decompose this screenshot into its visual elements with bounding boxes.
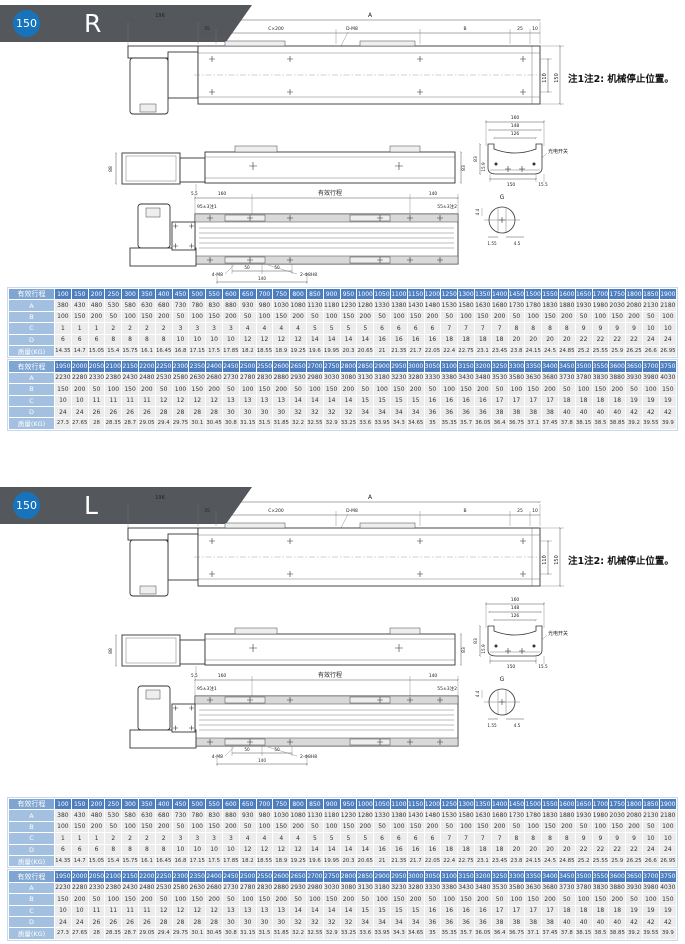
stroke-value-header: 1900 xyxy=(659,799,676,810)
cell-A: 2230 xyxy=(55,372,72,383)
cell-D: 26 xyxy=(122,916,139,927)
cell-mass: 22.75 xyxy=(458,345,475,356)
cell-A: 1280 xyxy=(357,300,374,311)
cell-D: 12 xyxy=(239,844,256,855)
cell-A: 1780 xyxy=(525,300,542,311)
carriage-1 xyxy=(235,146,277,152)
stroke-value-header: 1000 xyxy=(357,799,374,810)
cell-D: 16 xyxy=(407,334,424,345)
cell-C: 7 xyxy=(474,833,491,844)
label-holes-d-m8: D-M8 xyxy=(346,508,358,514)
cell-A: 3030 xyxy=(323,372,340,383)
cell-mass: 25.9 xyxy=(609,855,626,866)
row-label-A: A xyxy=(9,372,55,383)
cell-C: 13 xyxy=(222,905,239,916)
cell-B: 100 xyxy=(508,894,525,905)
dim-15-9: 15.9 xyxy=(481,644,486,654)
stroke-value-header: 900 xyxy=(323,799,340,810)
cell-C: 10 xyxy=(71,395,88,406)
stroke-header-label: 有效行程 xyxy=(9,871,55,882)
cell-B: 50 xyxy=(88,894,105,905)
cell-mass: 37.1 xyxy=(525,418,542,429)
cell-mass: 21 xyxy=(374,855,391,866)
cell-C: 10 xyxy=(642,323,659,334)
cell-C: 16 xyxy=(474,905,491,916)
cell-A: 530 xyxy=(105,300,122,311)
row-label-C: C xyxy=(9,395,55,406)
cell-mass: 17.85 xyxy=(222,855,239,866)
stroke-value-header: 2300 xyxy=(172,361,189,372)
stroke-value-header: 2300 xyxy=(172,871,189,882)
cell-C: 18 xyxy=(558,905,575,916)
cell-B: 100 xyxy=(642,384,659,395)
stroke-value-header: 1300 xyxy=(458,289,475,300)
cell-B: 200 xyxy=(542,384,559,395)
cell-C: 6 xyxy=(424,323,441,334)
cell-D: 20 xyxy=(508,844,525,855)
stroke-value-header: 3550 xyxy=(592,871,609,882)
cell-D: 8 xyxy=(122,334,139,345)
cell-A: 730 xyxy=(172,810,189,821)
top-view: 196 A 35 C×200 D-M8 B 25 10 110 150 xyxy=(128,494,564,596)
cell-D: 24 xyxy=(659,844,676,855)
dim-15-9: 15.9 xyxy=(481,162,486,172)
cell-mass: 32.55 xyxy=(306,928,323,939)
stroke-value-header: 2850 xyxy=(357,361,374,372)
cell-C: 17 xyxy=(525,905,542,916)
stroke-value-header: 3200 xyxy=(474,361,491,372)
dim-83-section: 83 xyxy=(473,638,479,644)
cell-D: 22 xyxy=(626,844,643,855)
cell-mass: 30.45 xyxy=(206,928,223,939)
cell-A: 2630 xyxy=(189,372,206,383)
cell-B: 200 xyxy=(357,821,374,832)
cell-mass: 26.6 xyxy=(642,855,659,866)
cell-B: 200 xyxy=(88,311,105,322)
cell-A: 1430 xyxy=(407,810,424,821)
cell-C: 2 xyxy=(105,323,122,334)
stroke-value-header: 3300 xyxy=(508,361,525,372)
cell-C: 19 xyxy=(659,905,676,916)
dim-10: 10 xyxy=(532,26,538,32)
cell-D: 14 xyxy=(306,334,323,345)
cell-mass: 39.55 xyxy=(642,418,659,429)
stroke-value-header: 2000 xyxy=(71,871,88,882)
stroke-value-header: 2250 xyxy=(155,871,172,882)
stroke-value-header: 2600 xyxy=(273,361,290,372)
cell-A: 3680 xyxy=(542,372,559,383)
cell-D: 26 xyxy=(88,916,105,927)
cell-D: 40 xyxy=(558,916,575,927)
cell-C: 9 xyxy=(592,323,609,334)
cell-mass: 16.8 xyxy=(172,345,189,356)
cell-B: 50 xyxy=(357,894,374,905)
stroke-value-header: 2900 xyxy=(374,361,391,372)
cell-B: 150 xyxy=(206,821,223,832)
dim-motor-length: 196 xyxy=(155,13,165,19)
cell-B: 100 xyxy=(374,384,391,395)
cell-C: 3 xyxy=(172,323,189,334)
cell-B: 100 xyxy=(172,384,189,395)
stroke-value-header: 3400 xyxy=(542,871,559,882)
cell-A: 1480 xyxy=(424,810,441,821)
cell-mass: 21 xyxy=(374,345,391,356)
cell-D: 20 xyxy=(508,334,525,345)
cell-mass: 24.15 xyxy=(525,345,542,356)
cell-mass: 31.85 xyxy=(273,928,290,939)
cell-D: 26 xyxy=(138,406,155,417)
cell-A: 2930 xyxy=(290,372,307,383)
cell-D: 38 xyxy=(525,916,542,927)
cell-A: 2030 xyxy=(609,300,626,311)
cell-mass: 39.9 xyxy=(659,928,676,939)
tolerance-right: 55±3注2 xyxy=(437,685,457,692)
cell-B: 200 xyxy=(340,894,357,905)
cell-A: 3130 xyxy=(357,882,374,893)
spec-tables-r: 有效行程100150200250300350400450500550600650… xyxy=(8,288,677,430)
cell-A: 3630 xyxy=(525,882,542,893)
stroke-value-header: 1250 xyxy=(441,289,458,300)
cell-mass: 27.3 xyxy=(55,418,72,429)
cell-C: 7 xyxy=(491,323,508,334)
cell-C: 7 xyxy=(458,323,475,334)
cell-D: 28 xyxy=(189,916,206,927)
cell-A: 2730 xyxy=(222,372,239,383)
cell-B: 200 xyxy=(474,894,491,905)
stroke-value-header: 1600 xyxy=(558,289,575,300)
cell-D: 20 xyxy=(525,844,542,855)
cell-C: 8 xyxy=(558,323,575,334)
cell-mass: 14.7 xyxy=(71,345,88,356)
cell-D: 30 xyxy=(222,406,239,417)
cell-C: 2 xyxy=(138,323,155,334)
cell-B: 100 xyxy=(575,894,592,905)
stroke-value-header: 3050 xyxy=(424,871,441,882)
cell-mass: 23.1 xyxy=(474,345,491,356)
cell-C: 14 xyxy=(323,905,340,916)
coupling-housing xyxy=(168,534,198,580)
cell-B: 50 xyxy=(441,311,458,322)
dim-140-bottom: 140 xyxy=(258,758,266,763)
cell-D: 40 xyxy=(609,406,626,417)
cell-A: 3830 xyxy=(592,372,609,383)
cell-D: 12 xyxy=(290,844,307,855)
dim-50-1: 50 xyxy=(244,265,250,270)
cell-A: 1230 xyxy=(340,810,357,821)
cell-D: 42 xyxy=(642,406,659,417)
cell-D: 24 xyxy=(55,406,72,417)
cell-B: 100 xyxy=(642,894,659,905)
cell-B: 150 xyxy=(256,384,273,395)
cell-A: 1630 xyxy=(474,810,491,821)
stroke-value-header: 600 xyxy=(222,799,239,810)
cell-mass: 37.8 xyxy=(558,418,575,429)
cell-D: 16 xyxy=(374,334,391,345)
cell-C: 15 xyxy=(374,395,391,406)
cell-mass: 32.55 xyxy=(306,418,323,429)
cell-C: 3 xyxy=(222,833,239,844)
cell-C: 12 xyxy=(206,905,223,916)
row-label-B: B xyxy=(9,311,55,322)
cell-C: 14 xyxy=(290,395,307,406)
cell-B: 50 xyxy=(306,311,323,322)
stroke-value-header: 750 xyxy=(273,289,290,300)
cell-B: 50 xyxy=(626,384,643,395)
cell-D: 28 xyxy=(155,406,172,417)
cell-C: 3 xyxy=(189,833,206,844)
cell-B: 150 xyxy=(55,894,72,905)
cell-D: 18 xyxy=(458,334,475,345)
cell-mass: 14.35 xyxy=(55,345,72,356)
cell-A: 680 xyxy=(155,300,172,311)
stroke-value-header: 2750 xyxy=(323,871,340,882)
cell-mass: 24.15 xyxy=(525,855,542,866)
stroke-value-header: 1950 xyxy=(55,361,72,372)
cell-B: 200 xyxy=(407,894,424,905)
cell-D: 40 xyxy=(558,406,575,417)
stroke-value-header: 3200 xyxy=(474,871,491,882)
cell-B: 50 xyxy=(491,894,508,905)
stroke-value-header: 1250 xyxy=(441,799,458,810)
row-label-D: D xyxy=(9,334,55,345)
cell-B: 150 xyxy=(407,821,424,832)
cell-C: 10 xyxy=(659,323,676,334)
g-detail-view: G 4.4 1.55 4.5 xyxy=(475,676,524,728)
dim-50-1: 50 xyxy=(244,747,250,752)
cell-B: 100 xyxy=(189,821,206,832)
cell-mass: 16.1 xyxy=(138,855,155,866)
cell-C: 14 xyxy=(340,905,357,916)
dim-B: B xyxy=(463,26,466,32)
cell-C: 14 xyxy=(306,395,323,406)
cell-B: 50 xyxy=(172,311,189,322)
cell-mass: 35.35 xyxy=(441,418,458,429)
cell-D: 22 xyxy=(575,334,592,345)
cell-A: 1980 xyxy=(592,300,609,311)
cell-B: 150 xyxy=(458,894,475,905)
stroke-value-header: 200 xyxy=(88,289,105,300)
cell-A: 3580 xyxy=(508,882,525,893)
dim-15-5: 15.5 xyxy=(538,182,548,187)
cell-D: 38 xyxy=(491,916,508,927)
tolerance-left: 95±3注1 xyxy=(197,203,217,210)
row-label-B: B xyxy=(9,384,55,395)
stroke-value-header: 1150 xyxy=(407,799,424,810)
cell-B: 200 xyxy=(558,821,575,832)
cell-C: 16 xyxy=(458,395,475,406)
cell-A: 2380 xyxy=(105,372,122,383)
stroke-value-header: 3500 xyxy=(575,871,592,882)
cell-D: 34 xyxy=(374,406,391,417)
stroke-value-header: 3250 xyxy=(491,361,508,372)
cell-B: 50 xyxy=(558,894,575,905)
cell-C: 16 xyxy=(458,905,475,916)
cell-B: 50 xyxy=(222,894,239,905)
cell-A: 830 xyxy=(206,300,223,311)
cell-B: 200 xyxy=(138,894,155,905)
cell-B: 50 xyxy=(575,821,592,832)
cell-B: 50 xyxy=(626,894,643,905)
cell-A: 3730 xyxy=(558,882,575,893)
cell-mass: 21.7 xyxy=(407,855,424,866)
cell-C: 4 xyxy=(290,323,307,334)
stroke-value-header: 3550 xyxy=(592,361,609,372)
row-label-B: B xyxy=(9,821,55,832)
cell-B: 50 xyxy=(239,821,256,832)
cell-A: 2430 xyxy=(122,372,139,383)
cell-mass: 31.5 xyxy=(256,418,273,429)
stroke-value-header: 3100 xyxy=(441,871,458,882)
cell-D: 6 xyxy=(88,844,105,855)
cell-D: 32 xyxy=(340,406,357,417)
cell-D: 22 xyxy=(592,844,609,855)
cell-mass: 25.55 xyxy=(592,855,609,866)
cell-C: 5 xyxy=(323,833,340,844)
cell-D: 42 xyxy=(659,406,676,417)
cell-mass: 19.6 xyxy=(306,855,323,866)
stroke-spec-table: 有效行程195020002050210021502200225023002350… xyxy=(8,870,677,939)
cell-A: 3530 xyxy=(491,882,508,893)
stroke-value-header: 2250 xyxy=(155,361,172,372)
cell-C: 17 xyxy=(525,395,542,406)
stroke-value-header: 2400 xyxy=(206,361,223,372)
cell-C: 6 xyxy=(374,323,391,334)
cell-C: 13 xyxy=(222,395,239,406)
row-label-A: A xyxy=(9,300,55,311)
cell-mass: 34.65 xyxy=(407,928,424,939)
cell-mass: 16.8 xyxy=(172,855,189,866)
cell-mass: 19.25 xyxy=(290,345,307,356)
stroke-value-header: 3700 xyxy=(642,361,659,372)
cell-D: 18 xyxy=(491,844,508,855)
cell-D: 30 xyxy=(273,916,290,927)
stroke-value-header: 1700 xyxy=(592,799,609,810)
dim-4-4: 4.4 xyxy=(475,208,480,215)
stroke-value-header: 1450 xyxy=(508,289,525,300)
stroke-value-header: 350 xyxy=(138,799,155,810)
cell-C: 15 xyxy=(390,905,407,916)
cell-B: 150 xyxy=(138,311,155,322)
stroke-value-header: 200 xyxy=(88,799,105,810)
cell-mass: 24.85 xyxy=(558,855,575,866)
cell-C: 18 xyxy=(592,905,609,916)
cell-mass: 33.25 xyxy=(340,418,357,429)
cell-D: 12 xyxy=(239,334,256,345)
note-text: 注1注2: 机械停止位置。 xyxy=(568,555,674,567)
cell-mass: 39.2 xyxy=(626,418,643,429)
stroke-value-header: 2400 xyxy=(206,871,223,882)
cell-A: 980 xyxy=(256,810,273,821)
cell-A: 3430 xyxy=(458,882,475,893)
cell-B: 200 xyxy=(491,821,508,832)
motor-end-block xyxy=(122,153,180,184)
dim-height-83: 83 xyxy=(461,165,467,171)
cell-D: 30 xyxy=(239,916,256,927)
cell-C: 6 xyxy=(424,833,441,844)
stroke-value-header: 100 xyxy=(55,289,72,300)
cell-B: 200 xyxy=(290,311,307,322)
cell-D: 10 xyxy=(172,844,189,855)
stroke-value-header: 1050 xyxy=(374,289,391,300)
cell-mass: 20.3 xyxy=(340,345,357,356)
cell-C: 9 xyxy=(609,833,626,844)
cell-B: 150 xyxy=(71,311,88,322)
cell-C: 12 xyxy=(155,905,172,916)
cell-A: 3830 xyxy=(592,882,609,893)
dim-5-5: 5.5 xyxy=(191,673,198,678)
cell-A: 2980 xyxy=(306,882,323,893)
cell-B: 50 xyxy=(290,894,307,905)
cell-B: 200 xyxy=(407,384,424,395)
cell-D: 12 xyxy=(256,844,273,855)
stroke-value-header: 950 xyxy=(340,289,357,300)
cell-D: 28 xyxy=(172,916,189,927)
cell-B: 150 xyxy=(340,821,357,832)
cell-A: 2680 xyxy=(206,372,223,383)
cell-A: 2380 xyxy=(105,882,122,893)
cell-mass: 15.4 xyxy=(105,855,122,866)
cell-A: 880 xyxy=(222,810,239,821)
cell-B: 100 xyxy=(105,894,122,905)
cell-D: 36 xyxy=(474,916,491,927)
stroke-value-header: 3150 xyxy=(458,361,475,372)
cell-D: 8 xyxy=(155,334,172,345)
cell-A: 1130 xyxy=(306,300,323,311)
cell-C: 17 xyxy=(508,395,525,406)
cell-B: 200 xyxy=(138,384,155,395)
cell-mass: 26.6 xyxy=(642,345,659,356)
cell-A: 3880 xyxy=(609,372,626,383)
cell-D: 40 xyxy=(592,406,609,417)
stroke-value-header: 300 xyxy=(122,799,139,810)
cell-B: 50 xyxy=(222,384,239,395)
cell-D: 42 xyxy=(642,916,659,927)
cell-mass: 23.45 xyxy=(491,855,508,866)
cell-mass: 14.7 xyxy=(71,855,88,866)
cell-C: 15 xyxy=(407,395,424,406)
stroke-value-header: 2350 xyxy=(189,361,206,372)
cell-A: 380 xyxy=(55,810,72,821)
cell-A: 3980 xyxy=(642,882,659,893)
cell-A: 830 xyxy=(206,810,223,821)
cell-mass: 33.6 xyxy=(357,418,374,429)
cell-B: 50 xyxy=(155,894,172,905)
cell-B: 150 xyxy=(407,311,424,322)
dim-148-section: 148 xyxy=(511,123,520,129)
cell-C: 17 xyxy=(508,905,525,916)
cell-mass: 21.35 xyxy=(390,345,407,356)
cell-B: 150 xyxy=(525,384,542,395)
stroke-value-header: 100 xyxy=(55,799,72,810)
cell-mass: 39.55 xyxy=(642,928,659,939)
cell-A: 2330 xyxy=(88,372,105,383)
cell-mass: 29.75 xyxy=(172,418,189,429)
cell-mass: 32.9 xyxy=(323,928,340,939)
cell-C: 5 xyxy=(357,833,374,844)
stroke-value-header: 150 xyxy=(71,799,88,810)
cell-D: 16 xyxy=(374,844,391,855)
cell-mass: 19.6 xyxy=(306,345,323,356)
cell-D: 18 xyxy=(441,844,458,855)
cell-D: 10 xyxy=(206,844,223,855)
cell-B: 150 xyxy=(256,894,273,905)
cell-C: 4 xyxy=(239,833,256,844)
dim-5-5: 5.5 xyxy=(191,191,198,196)
cell-mass: 24.5 xyxy=(542,855,559,866)
cell-A: 2780 xyxy=(239,882,256,893)
cell-D: 16 xyxy=(390,844,407,855)
cell-C: 13 xyxy=(256,905,273,916)
